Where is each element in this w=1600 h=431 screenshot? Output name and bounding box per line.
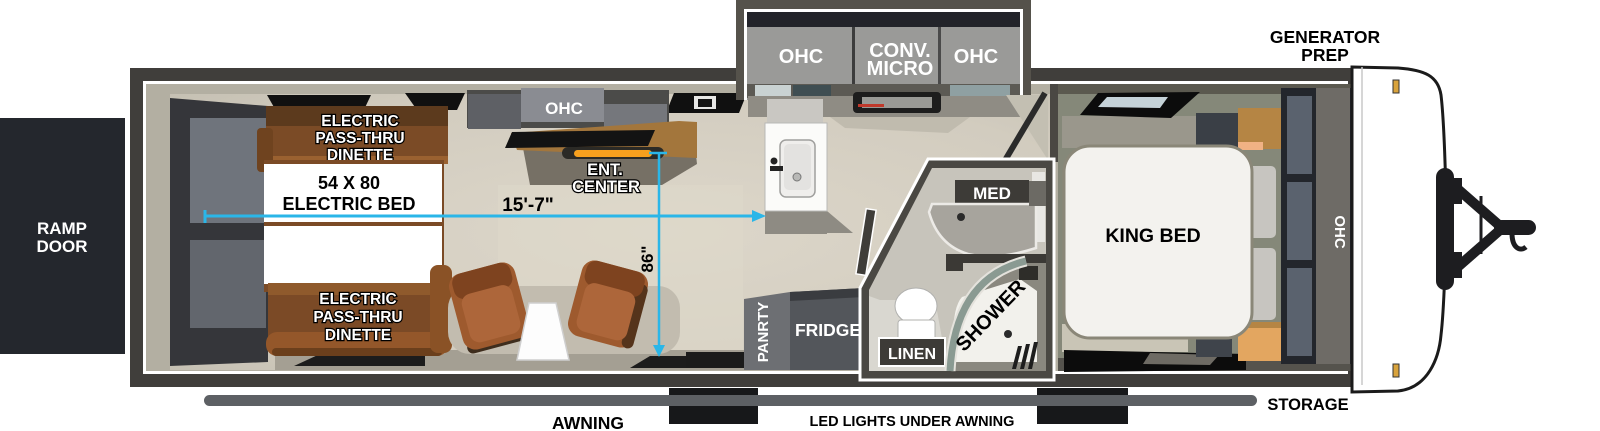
svg-text:ELECTRIC: ELECTRIC — [319, 291, 397, 308]
svg-text:FRIDGE: FRIDGE — [795, 320, 861, 340]
svg-text:CENTER: CENTER — [572, 178, 640, 196]
svg-text:LED LIGHTS UNDER AWNING: LED LIGHTS UNDER AWNING — [810, 414, 1015, 430]
svg-text:MED: MED — [973, 184, 1011, 203]
svg-text:86": 86" — [638, 246, 657, 273]
svg-text:PREP: PREP — [1301, 45, 1349, 65]
svg-text:OHC: OHC — [779, 46, 823, 68]
svg-text:54 X 80: 54 X 80 — [318, 173, 380, 193]
svg-text:DINETTE: DINETTE — [325, 327, 391, 344]
svg-text:ENT.: ENT. — [587, 161, 623, 179]
svg-text:OHC: OHC — [545, 99, 583, 118]
svg-text:KING BED: KING BED — [1105, 225, 1200, 247]
svg-text:PANRTY: PANRTY — [755, 302, 772, 363]
svg-text:MICRO: MICRO — [867, 58, 934, 80]
svg-text:OHC: OHC — [954, 46, 998, 68]
svg-text:STORAGE: STORAGE — [1267, 396, 1348, 414]
svg-text:ELECTRIC: ELECTRIC — [321, 113, 399, 130]
svg-text:PASS-THRU: PASS-THRU — [315, 130, 404, 147]
svg-text:RAMP: RAMP — [37, 219, 87, 238]
svg-text:15'-7": 15'-7" — [502, 195, 554, 216]
svg-text:OHC: OHC — [1331, 215, 1348, 249]
svg-text:ELECTRIC BED: ELECTRIC BED — [282, 194, 415, 214]
svg-text:DOOR: DOOR — [37, 237, 88, 256]
svg-text:GENERATOR: GENERATOR — [1270, 27, 1381, 47]
svg-text:AWNING: AWNING — [552, 413, 624, 431]
svg-text:LINEN: LINEN — [888, 346, 936, 363]
svg-text:PASS-THRU: PASS-THRU — [313, 309, 402, 326]
